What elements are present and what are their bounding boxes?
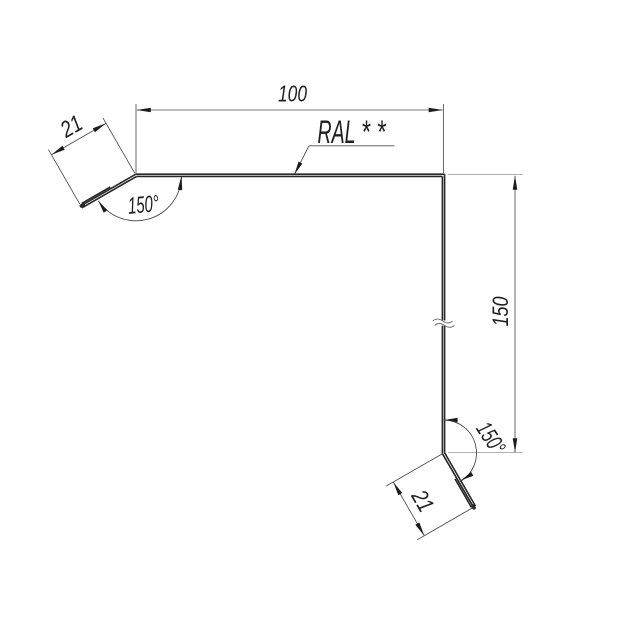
svg-text:* *: * * bbox=[361, 114, 387, 150]
svg-text:150°: 150° bbox=[127, 190, 160, 219]
svg-text:21: 21 bbox=[406, 484, 439, 516]
svg-text:150: 150 bbox=[488, 296, 513, 327]
svg-text:100: 100 bbox=[278, 81, 307, 107]
svg-text:RAL: RAL bbox=[318, 114, 356, 150]
svg-text:21: 21 bbox=[55, 110, 87, 143]
